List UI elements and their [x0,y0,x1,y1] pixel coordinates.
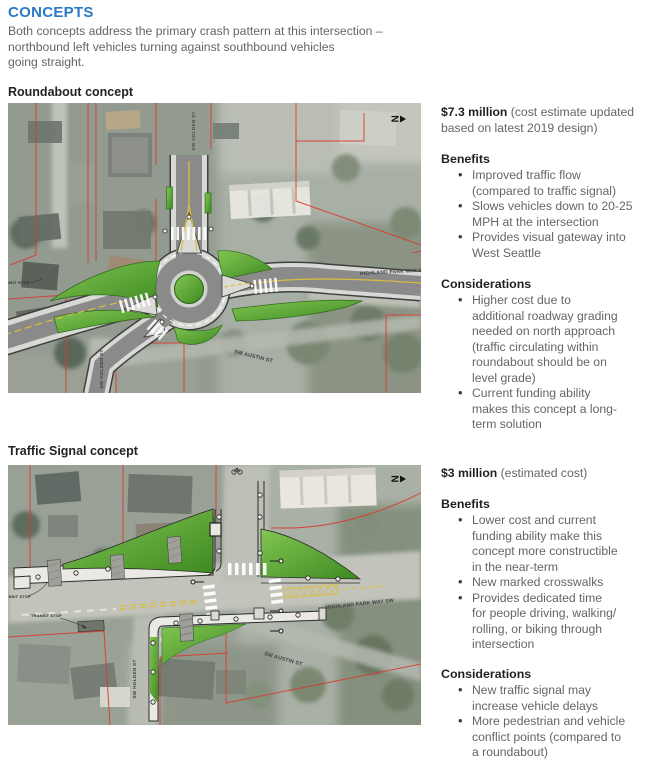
bullet-item: New traffic signal may increase vehicle … [441,683,650,714]
traffic-signal-concept-map: TRANSIT STOP TRANSIT STOP HIGHLAND PARK … [8,465,421,725]
bullet-item: More pedestrian and vehicle conflict poi… [441,714,650,761]
signal-considerations-list: New traffic signal may increase vehicle … [441,683,650,761]
signal-cost-amount: $3 million [441,466,497,480]
roundabout-considerations-list: Higher cost due to additional roadway gr… [441,293,650,433]
bullet-item: Improved traffic flow (compared to traff… [441,168,650,199]
bullet-item: Slows vehicles down to 20-25 MPH at the … [441,199,650,230]
transit-stop-label-2: TRANSIT STOP [31,613,62,618]
roundabout-benefits-heading: Benefits [441,152,650,168]
bullet-item: Lower cost and current funding ability m… [441,513,650,575]
intro-paragraph: Both concepts address the primary crash … [8,24,442,71]
roundabout-concept-map: SW HOLDEN ST HIGHLAND PARK WAY SW SW AUS… [8,103,421,393]
transit-stop-label-1: TRANSIT STOP [8,594,31,599]
svg-text:N: N [389,475,400,482]
signal-benefits-heading: Benefits [441,497,650,513]
roundabout-center-island [175,275,204,304]
roundabout-benefits-list: Improved traffic flow (compared to traff… [441,168,650,261]
signal-heading: Traffic Signal concept [8,444,138,458]
aerial-photo [8,465,421,725]
concepts-page: CONCEPTS Both concepts address the prima… [0,0,650,764]
signal-benefits-list: Lower cost and current funding ability m… [441,513,650,653]
transit-stop-label: TRANSIT STOP [8,280,30,285]
bullet-item: Higher cost due to additional roadway gr… [441,293,650,386]
bus-shelter [78,620,104,631]
bullet-item: New marked crosswalks [441,575,650,591]
page-title: CONCEPTS [8,4,94,21]
driveway-crossing-south [180,614,194,641]
signal-cost: $3 million (estimated cost) [441,466,650,482]
roundabout-map-svg: SW HOLDEN ST HIGHLAND PARK WAY SW SW AUS… [8,103,421,393]
svg-text:N: N [389,115,400,122]
holden-st-bottom-label: SW HOLDEN ST [99,349,105,388]
aerial-photo [8,103,421,393]
roundabout-cost-amount: $7.3 million [441,105,507,119]
bullet-item: Current funding ability makes this conce… [441,386,650,433]
bullet-item: Provides visual gateway into West Seattl… [441,230,650,261]
signal-map-svg: TRANSIT STOP TRANSIT STOP HIGHLAND PARK … [8,465,421,725]
signal-cost-note: (estimated cost) [501,466,588,480]
holden-st-top-label: SW HOLDEN ST [191,111,197,150]
transit-shelter [210,523,221,536]
roundabout-considerations-heading: Considerations [441,277,650,293]
roundabout-cost: $7.3 million (cost estimate updated base… [441,105,650,136]
roundabout-heading: Roundabout concept [8,85,133,99]
bullet-item: Provides dedicated time for people drivi… [441,591,650,653]
holden-st-label: SW HOLDEN ST [132,659,138,698]
signal-considerations-heading: Considerations [441,667,650,683]
